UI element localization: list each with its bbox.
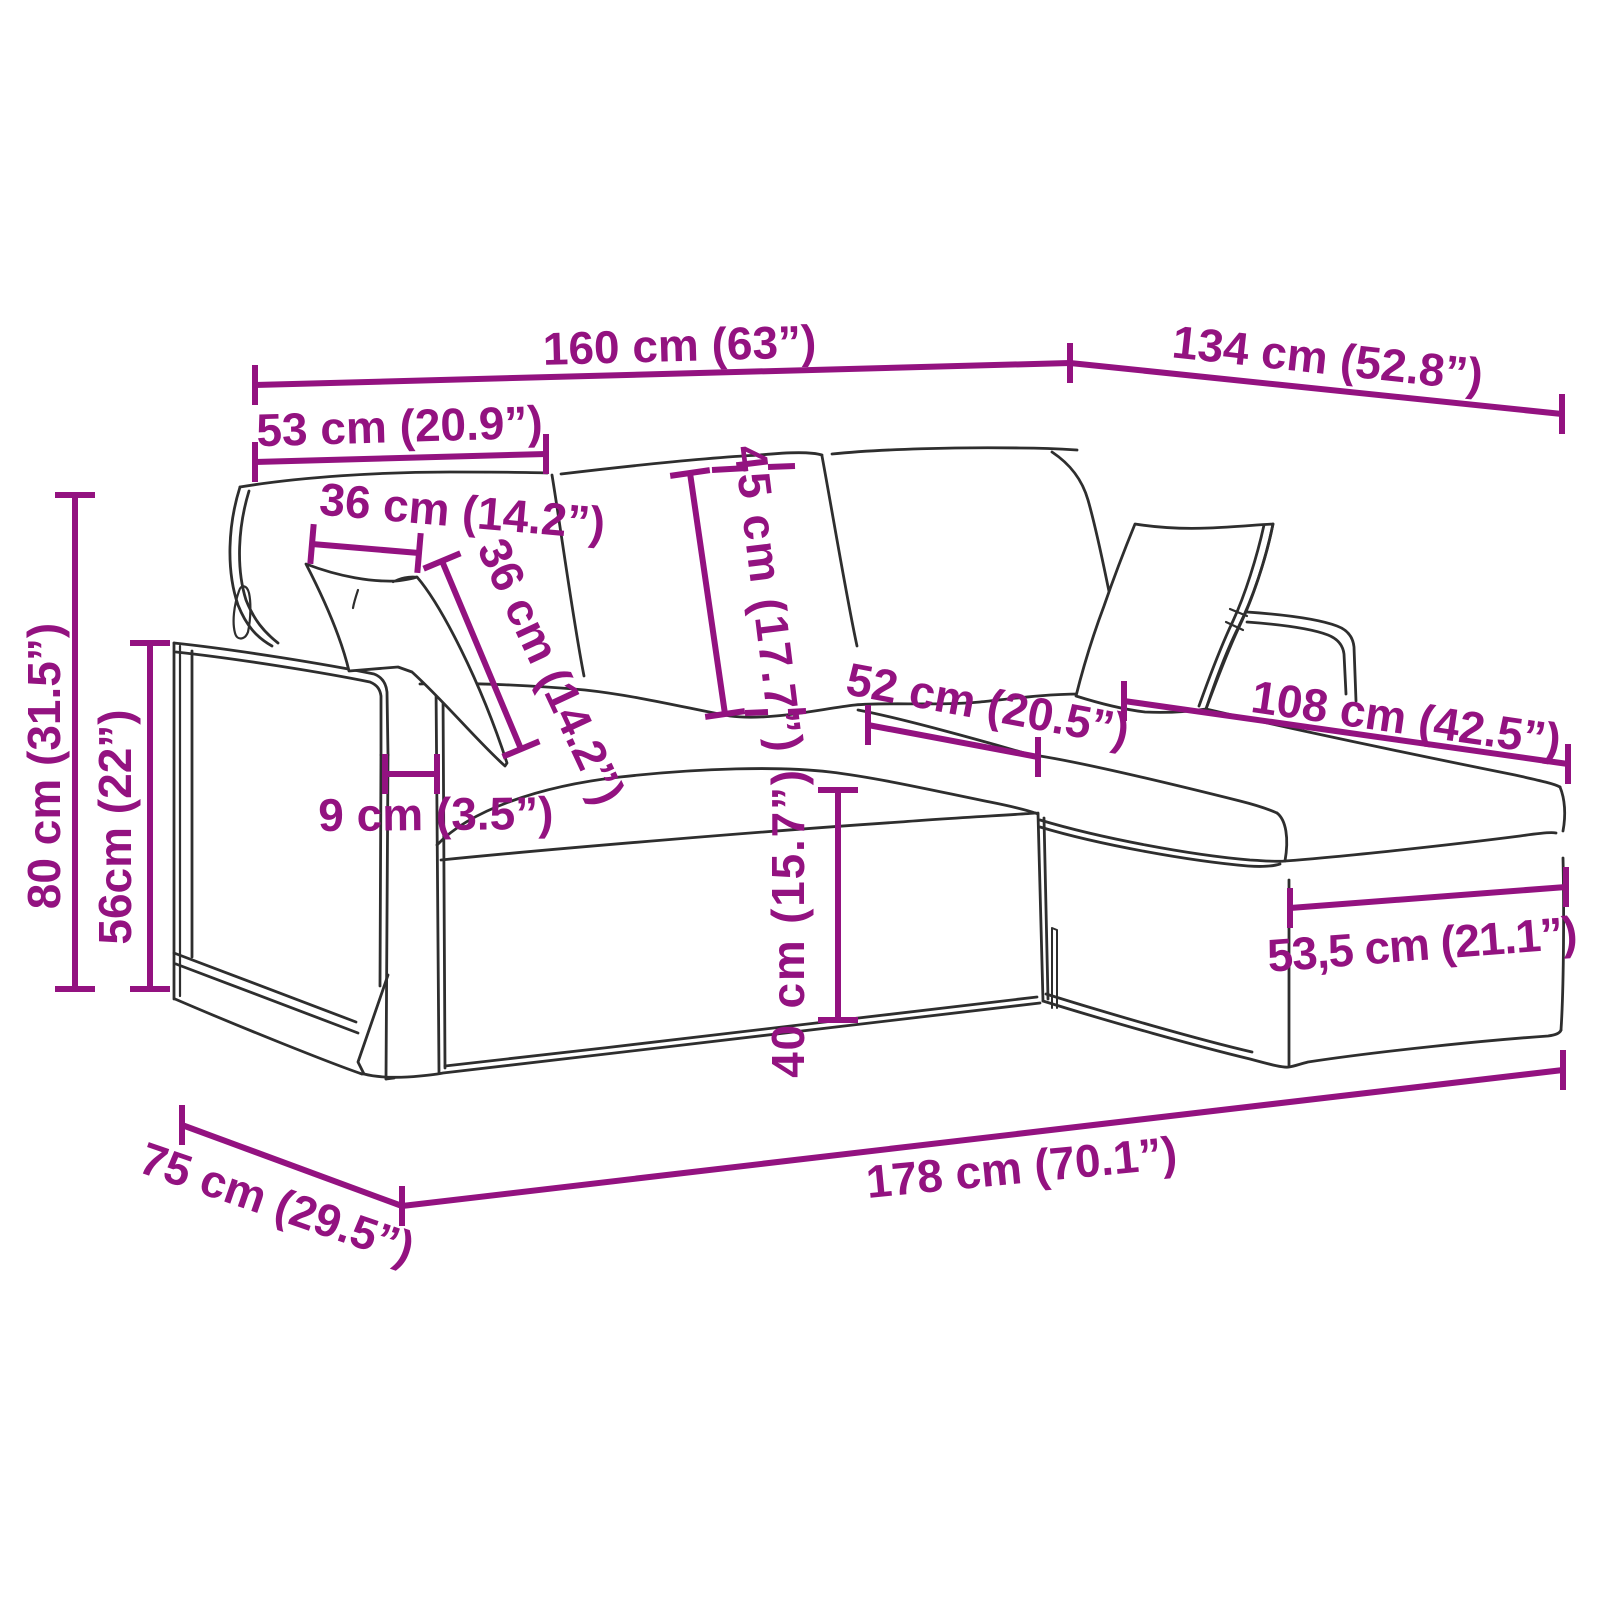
svg-text:53 cm (20.9”): 53 cm (20.9”) bbox=[256, 396, 544, 456]
svg-text:56cm (22”): 56cm (22”) bbox=[89, 709, 141, 944]
svg-text:160 cm (63”): 160 cm (63”) bbox=[542, 315, 817, 375]
svg-text:80 cm (31.5”): 80 cm (31.5”) bbox=[18, 623, 70, 909]
svg-text:40 cm (15.7”): 40 cm (15.7”) bbox=[762, 768, 814, 1078]
svg-text:9 cm (3.5”): 9 cm (3.5”) bbox=[318, 787, 554, 841]
